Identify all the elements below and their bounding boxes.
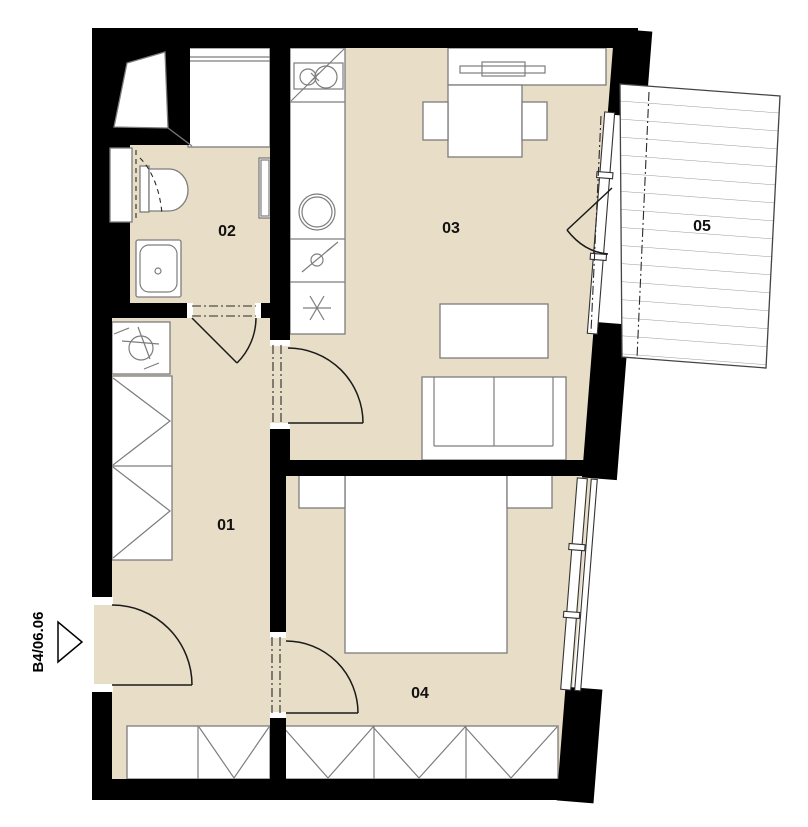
- unit-label: B4/06.06: [30, 612, 47, 673]
- floor-plan-page: 01 02 03 04 05 B4/06.06: [0, 0, 808, 827]
- toilet-icon: [140, 166, 188, 212]
- wall-top: [92, 28, 638, 48]
- wall-bath-kitchen: [270, 48, 290, 345]
- kitchen-counter: [290, 48, 345, 334]
- wall-left-upper: [92, 28, 112, 598]
- nightstand-left: [299, 474, 345, 508]
- dining-chair-left: [423, 102, 448, 140]
- bedroom-wardrobe: [282, 726, 558, 779]
- entry-jamb-top: [92, 597, 113, 605]
- wall-hall-bedroom-lower: [270, 713, 286, 783]
- room-label-02: 02: [218, 223, 236, 240]
- nightstand-right: [507, 474, 552, 508]
- room-label-04: 04: [411, 685, 429, 702]
- towel-radiator-icon: [259, 158, 271, 218]
- hall-wardrobe: [112, 376, 172, 560]
- entry-recess-floor: [94, 600, 112, 690]
- wall-bath-bottom-left: [112, 303, 192, 318]
- room-label-01: 01: [217, 517, 235, 534]
- washing-machine-icon: [112, 322, 170, 374]
- entry-jamb-bottom: [92, 684, 113, 692]
- wall-left-lower: [92, 692, 112, 788]
- entry-direction-triangle-icon: [58, 622, 82, 662]
- wall-living-bedroom: [282, 460, 604, 476]
- entry-marker: B4/06.06: [30, 612, 82, 673]
- sofa: [422, 377, 566, 460]
- room-label-03: 03: [442, 220, 460, 237]
- wall-bottom: [92, 779, 566, 800]
- living-door-jamb-bottom: [270, 423, 290, 429]
- washbasin-icon: [136, 240, 181, 297]
- bed: [345, 474, 507, 653]
- dining-table: [448, 85, 522, 157]
- coffee-table: [440, 304, 548, 358]
- shower-icon: [188, 48, 270, 147]
- dining-chair-right: [522, 102, 547, 140]
- wall-hall-bedroom-upper: [270, 460, 286, 637]
- hall-bottom-wardrobe: [127, 726, 270, 779]
- sideboard-with-tv: [448, 48, 606, 85]
- floor-plan-drawing: 01 02 03 04 05 B4/06.06: [0, 0, 808, 827]
- wall-niche: [110, 148, 132, 222]
- room-label-05: 05: [693, 218, 711, 235]
